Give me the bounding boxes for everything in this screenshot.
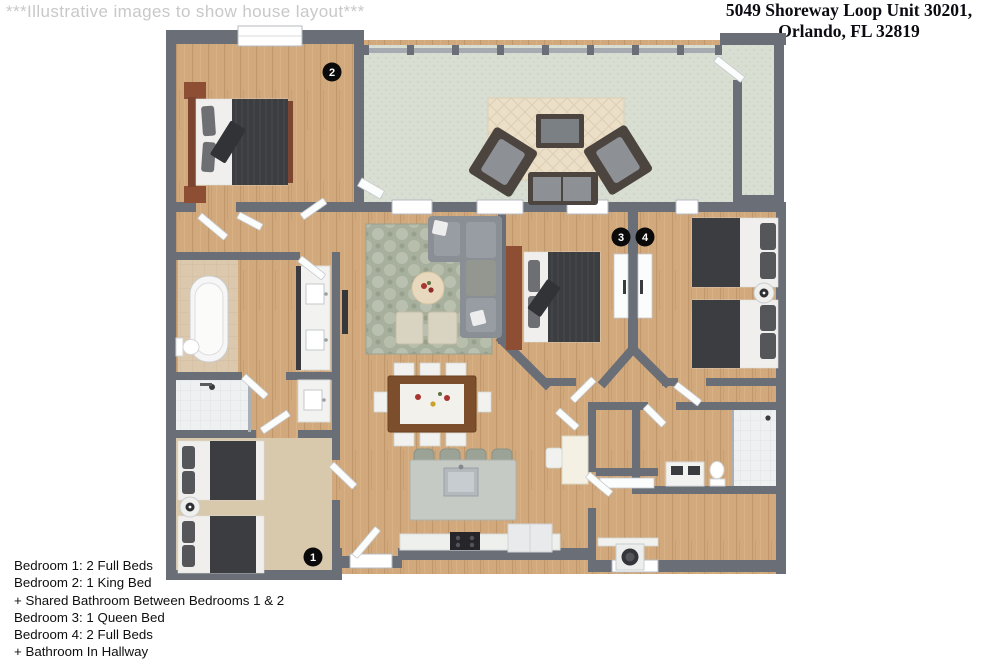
tall-cabinet: [342, 290, 348, 334]
full-bed: [692, 300, 778, 368]
dining-chair: [394, 433, 414, 446]
patio-coffee-table: [536, 114, 584, 148]
toilet: [710, 462, 725, 487]
toilet: [176, 338, 199, 356]
marker-bedroom-1: 1: [304, 548, 323, 567]
legend-line: Bedroom 3: 1 Queen Bed: [14, 609, 284, 626]
accent-chair: [428, 312, 457, 344]
nightstand: [184, 186, 206, 203]
dining-table: [388, 376, 476, 432]
marker-1-label: 1: [310, 552, 316, 564]
bedroom2-furniture: [184, 82, 293, 203]
vanity: [666, 462, 704, 486]
washer: [616, 544, 644, 570]
legend-line: + Shared Bathroom Between Bedrooms 1 & 2: [14, 592, 284, 609]
marker-2-label: 2: [329, 67, 335, 79]
legend-line: + Bathroom In Hallway: [14, 643, 284, 660]
dresser: [506, 246, 522, 350]
full-bed: [178, 441, 264, 500]
shower: [734, 410, 776, 486]
desk: [562, 436, 588, 484]
linen-closet-doors: [600, 478, 654, 488]
round-nightstand: [180, 497, 200, 517]
marker-3-label: 3: [618, 232, 624, 244]
accent-chair: [396, 312, 423, 344]
dining-chair: [446, 433, 466, 446]
dining-chair: [394, 363, 414, 376]
nightstand: [184, 82, 206, 99]
dining-chair: [446, 363, 466, 376]
marker-bedroom-4: 4: [636, 228, 655, 247]
marker-bedroom-2: 2: [323, 63, 342, 82]
king-bed: [188, 97, 293, 187]
patio-slider-4: [676, 200, 698, 214]
desk-chair: [546, 448, 562, 468]
patio-slider-1: [392, 200, 432, 214]
double-vanity: [296, 266, 330, 370]
dining-chair: [478, 392, 491, 412]
patio-slider-2: [477, 200, 523, 214]
kitchen-island: [410, 460, 516, 520]
patio-loveseat: [528, 172, 598, 205]
legend-line: Bedroom 2: 1 King Bed: [14, 574, 284, 591]
legend-line: Bedroom 4: 2 Full Beds: [14, 626, 284, 643]
full-bed: [692, 218, 778, 287]
round-nightstand: [754, 283, 774, 303]
marker-4-label: 4: [642, 232, 649, 244]
bedroom-legend: Bedroom 1: 2 Full Beds Bedroom 2: 1 King…: [14, 557, 284, 661]
vanity: [298, 380, 330, 422]
dining-chair: [420, 363, 440, 376]
queen-bed: [524, 252, 600, 342]
dining-chair: [420, 433, 440, 446]
dining-chair: [374, 392, 387, 412]
floorplan-page: ***Illustrative images to show house lay…: [0, 0, 1000, 667]
stove: [450, 532, 480, 550]
round-coffee-table: [412, 272, 444, 304]
legend-line: Bedroom 1: 2 Full Beds: [14, 557, 284, 574]
marker-bedroom-3: 3: [612, 228, 631, 247]
